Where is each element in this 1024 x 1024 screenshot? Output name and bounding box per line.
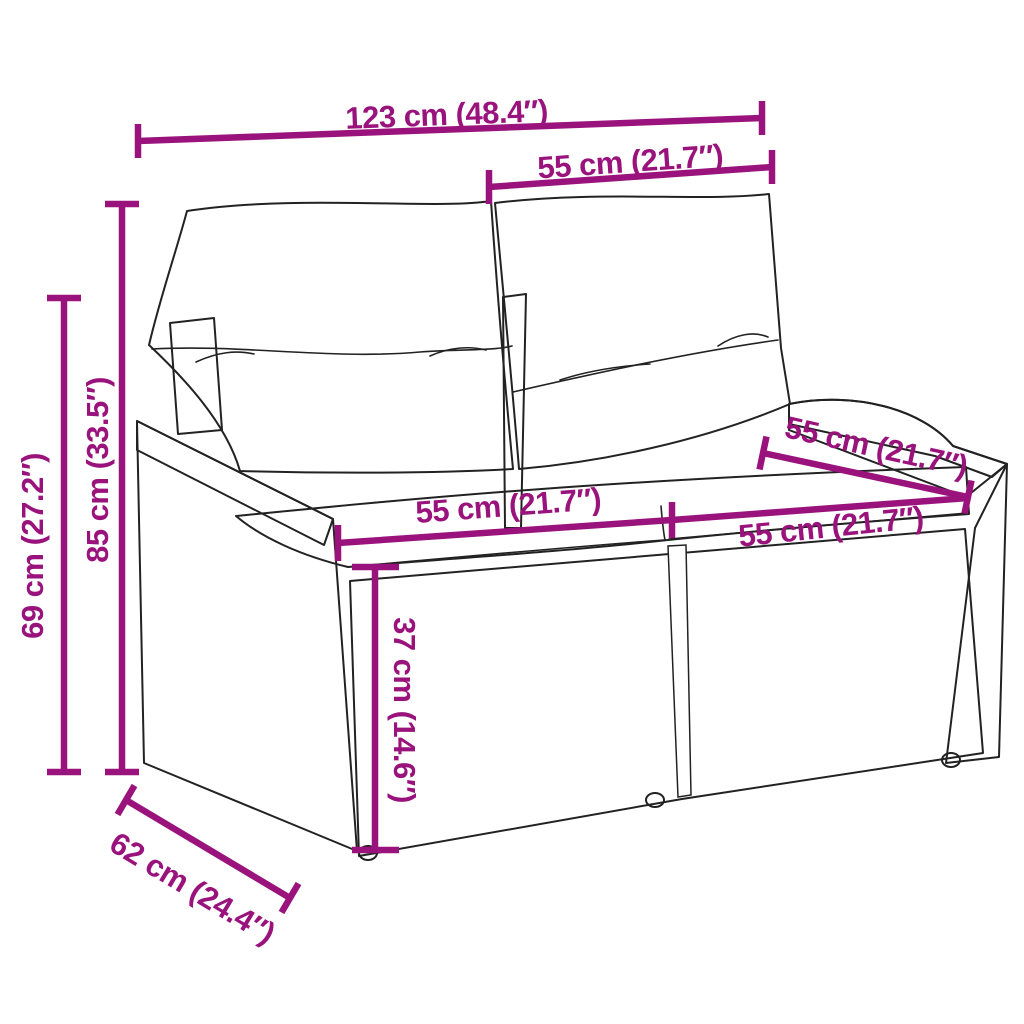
- dim-backrest-width: 55 cm (21.7″): [489, 138, 772, 204]
- diagram-canvas: 123 cm (48.4″) 55 cm (21.7″) 85 cm (33.5…: [0, 0, 1024, 1024]
- left-armrest: [137, 421, 357, 851]
- dim-armrest-height: 69 cm (27.2″): [15, 298, 81, 772]
- dim-label-total-height: 85 cm (33.5″): [80, 377, 115, 563]
- dim-seat-height: 37 cm (14.6″): [352, 567, 422, 850]
- dim-total-depth: 62 cm (24.4″): [104, 786, 299, 951]
- sofa-foot-center: [646, 793, 664, 807]
- dim-label-armrest-height: 69 cm (27.2″): [15, 453, 50, 639]
- product-dimension-diagram: 123 cm (48.4″) 55 cm (21.7″) 85 cm (33.5…: [0, 0, 1024, 1024]
- sofa-foot-right: [942, 753, 960, 767]
- dim-seat-widths: 55 cm (21.7″) 55 cm (21.7″): [338, 481, 968, 561]
- dim-label-total-depth: 62 cm (24.4″): [104, 825, 281, 951]
- dim-label-seat-width-left: 55 cm (21.7″): [414, 481, 602, 530]
- seat-module-seam: [668, 545, 691, 797]
- dim-label-seat-height: 37 cm (14.6″): [387, 617, 422, 803]
- back-left-post: [170, 318, 222, 434]
- right-back-cushion: [495, 194, 790, 469]
- front-base-panel: [350, 529, 983, 856]
- dim-label-backrest-width: 55 cm (21.7″): [536, 138, 724, 186]
- dim-total-height: 85 cm (33.5″): [80, 204, 139, 772]
